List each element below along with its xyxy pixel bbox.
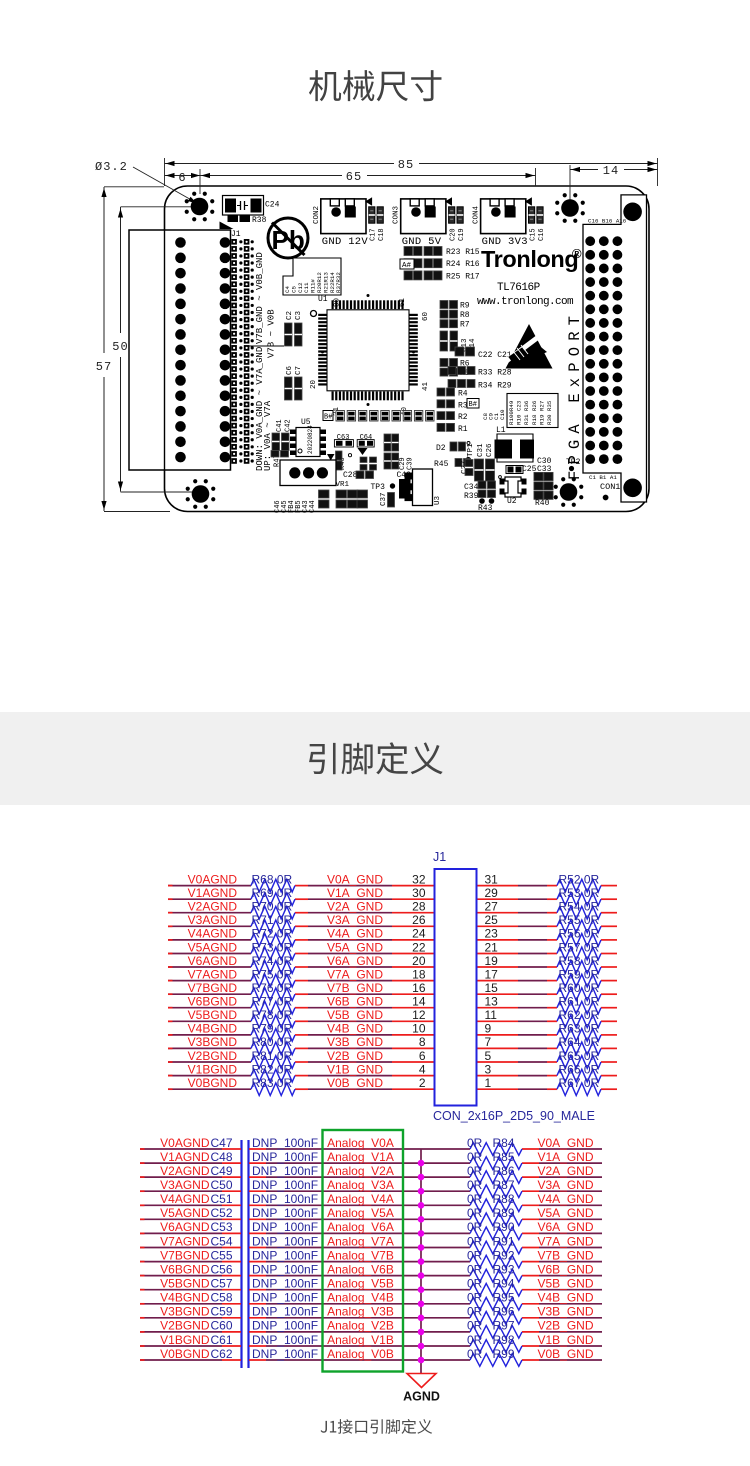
svg-text:DNP_100nF: DNP_100nF [252, 1206, 318, 1220]
svg-text:6: 6 [419, 1049, 426, 1063]
svg-text:Analog_V3B: Analog_V3B [327, 1305, 394, 1319]
svg-text:R60 0R: R60 0R [559, 981, 600, 995]
svg-text:80: 80 [334, 297, 342, 307]
svg-text:18: 18 [412, 967, 426, 981]
svg-text:C1 B1 A1: C1 B1 A1 [589, 474, 617, 481]
svg-text:R72 0R: R72 0R [252, 927, 293, 941]
svg-text:V1BGND: V1BGND [188, 1062, 238, 1076]
svg-text:Ø3.2: Ø3.2 [95, 160, 128, 174]
svg-text:U2: U2 [507, 497, 517, 506]
svg-text:C6: C6 [286, 365, 294, 375]
svg-text:R63 0R: R63 0R [559, 1022, 600, 1036]
svg-text:R82 0R: R82 0R [252, 1062, 293, 1076]
svg-text:TP1: TP1 [467, 443, 475, 457]
svg-text:V4A_GND: V4A_GND [537, 1192, 593, 1206]
svg-text:R43: R43 [478, 504, 493, 513]
svg-text:R18 R26: R18 R26 [531, 400, 538, 425]
svg-text:5: 5 [485, 1049, 492, 1063]
svg-text:R33 R28: R33 R28 [478, 369, 512, 378]
svg-text:V2B_GND: V2B_GND [327, 1049, 383, 1063]
svg-text:R52 0R: R52 0R [559, 872, 600, 886]
svg-text:R40: R40 [535, 499, 550, 508]
svg-text:R4: R4 [458, 390, 468, 399]
svg-text:R69 0R: R69 0R [252, 886, 293, 900]
svg-text:65: 65 [346, 170, 362, 184]
svg-text:R38: R38 [252, 216, 267, 225]
svg-text:Analog_V7A: Analog_V7A [327, 1234, 394, 1248]
svg-text:R78 0R: R78 0R [252, 1008, 293, 1022]
svg-text:C16 B16 A16: C16 B16 A16 [588, 218, 627, 225]
svg-text:85: 85 [398, 158, 414, 172]
svg-text:R54 0R: R54 0R [559, 900, 600, 914]
svg-text:15: 15 [485, 981, 499, 995]
svg-text:C52: C52 [211, 1206, 233, 1220]
svg-text:V6AGND: V6AGND [160, 1220, 210, 1234]
svg-text:V3B_GND: V3B_GND [327, 1035, 383, 1049]
svg-text:1: 1 [485, 1076, 492, 1090]
svg-text:C3: C3 [295, 310, 303, 320]
svg-text:DNP_100nF: DNP_100nF [252, 1305, 318, 1319]
svg-text:0R: 0R [467, 1262, 483, 1276]
svg-text:C39: C39 [407, 457, 415, 470]
svg-text:R99: R99 [493, 1347, 515, 1361]
svg-text:R8: R8 [460, 311, 470, 320]
svg-text:Analog_V1A: Analog_V1A [327, 1150, 394, 1164]
svg-text:V3BGND: V3BGND [160, 1305, 210, 1319]
svg-text:B#: B# [469, 401, 477, 409]
svg-text:Analog_V0A: Analog_V0A [327, 1136, 394, 1150]
svg-text:C59: C59 [211, 1305, 233, 1319]
svg-text:Analog_V6B: Analog_V6B [327, 1262, 394, 1276]
svg-text:R31 R36: R31 R36 [523, 400, 530, 425]
svg-text:C42: C42 [285, 419, 293, 432]
svg-text:V6A_GND: V6A_GND [537, 1220, 593, 1234]
svg-text:DNP_100nF: DNP_100nF [252, 1164, 318, 1178]
svg-text:DNP_100nF: DNP_100nF [252, 1192, 318, 1206]
svg-text:14: 14 [412, 995, 426, 1009]
svg-text:R45: R45 [434, 460, 449, 469]
svg-text:C28: C28 [343, 471, 358, 480]
svg-text:V0AGND: V0AGND [160, 1136, 210, 1150]
svg-text:C51: C51 [211, 1192, 233, 1206]
svg-text:V3A_GND: V3A_GND [537, 1178, 593, 1192]
svg-text:V2BGND: V2BGND [160, 1319, 210, 1333]
svg-text:R97: R97 [493, 1319, 515, 1333]
svg-text:V0B_GND: V0B_GND [327, 1076, 383, 1090]
svg-text:V1BGND: V1BGND [160, 1333, 210, 1347]
svg-text:R76 0R: R76 0R [252, 981, 293, 995]
svg-text:0R: 0R [467, 1192, 483, 1206]
svg-text:C49: C49 [211, 1164, 233, 1178]
svg-text:R92: R92 [493, 1248, 515, 1262]
svg-text:R86: R86 [493, 1164, 515, 1178]
svg-text:J1: J1 [231, 230, 241, 239]
svg-text:V5B_GND: V5B_GND [537, 1277, 593, 1291]
svg-text:C54: C54 [211, 1234, 233, 1248]
svg-text:DNP_100nF: DNP_100nF [252, 1277, 318, 1291]
svg-text:R91: R91 [493, 1234, 515, 1248]
svg-text:C20: C20 [450, 228, 458, 241]
svg-text:C2: C2 [286, 311, 294, 320]
svg-text:J1: J1 [433, 850, 446, 864]
svg-text:31: 31 [485, 872, 499, 886]
svg-text:R39: R39 [464, 492, 479, 501]
svg-text:Analog_V0B: Analog_V0B [327, 1347, 394, 1361]
svg-text:V5A_GND: V5A_GND [537, 1206, 593, 1220]
svg-text:R61 0R: R61 0R [559, 995, 600, 1009]
svg-text:24: 24 [412, 927, 426, 941]
svg-text:Analog_V2B: Analog_V2B [327, 1319, 394, 1333]
svg-text:R55 0R: R55 0R [559, 913, 600, 927]
svg-text:32: 32 [412, 872, 426, 886]
svg-text:V2A_GND: V2A_GND [327, 900, 383, 914]
svg-text:0R: 0R [467, 1220, 483, 1234]
svg-text:20220824: 20220824 [307, 425, 314, 454]
svg-text:V4BGND: V4BGND [188, 1022, 238, 1036]
svg-text:V3AGND: V3AGND [160, 1178, 210, 1192]
svg-text:DNP_100nF: DNP_100nF [252, 1347, 318, 1361]
svg-text:8: 8 [419, 1035, 426, 1049]
svg-text:R71 0R: R71 0R [252, 913, 293, 927]
svg-text:R19 R27: R19 R27 [538, 400, 545, 425]
svg-text:C47: C47 [211, 1136, 233, 1150]
svg-text:VR1: VR1 [336, 481, 350, 489]
svg-text:AGND: AGND [403, 1390, 440, 1404]
svg-text:C48: C48 [211, 1150, 233, 1164]
svg-text:V2B_GND: V2B_GND [537, 1319, 593, 1333]
svg-text:60: 60 [422, 311, 430, 321]
svg-text:V7B_GND: V7B_GND [537, 1248, 593, 1262]
svg-text:D2: D2 [436, 444, 446, 453]
svg-text:V7BGND: V7BGND [160, 1248, 210, 1262]
svg-text:R70 0R: R70 0R [252, 900, 293, 914]
svg-text:V1B_GND: V1B_GND [327, 1062, 383, 1076]
svg-text:V5AGND: V5AGND [188, 940, 238, 954]
svg-text:R56 0R: R56 0R [559, 927, 600, 941]
svg-text:R87: R87 [493, 1178, 515, 1192]
svg-text:C24: C24 [265, 201, 280, 210]
svg-text:0R: 0R [467, 1305, 483, 1319]
svg-text:C55: C55 [211, 1248, 233, 1262]
svg-text:C16: C16 [538, 228, 546, 241]
svg-text:0R: 0R [467, 1164, 483, 1178]
svg-text:V1A_GND: V1A_GND [327, 886, 383, 900]
svg-text:V2AGND: V2AGND [188, 900, 238, 914]
svg-text:R2: R2 [458, 413, 468, 422]
svg-text:DNP_100nF: DNP_100nF [252, 1262, 318, 1276]
svg-text:V6AGND: V6AGND [188, 954, 238, 968]
svg-text:C10: C10 [499, 409, 506, 420]
svg-text:R85: R85 [493, 1150, 515, 1164]
svg-text:0R: 0R [467, 1178, 483, 1192]
svg-text:V4BGND: V4BGND [160, 1291, 210, 1305]
svg-text:TP3: TP3 [371, 483, 386, 492]
svg-text:R96: R96 [493, 1305, 515, 1319]
svg-text:25: 25 [485, 913, 499, 927]
svg-text:20: 20 [310, 379, 318, 389]
svg-text:C60: C60 [211, 1319, 233, 1333]
svg-text:CON_2x16P_2D5_90_MALE: CON_2x16P_2D5_90_MALE [433, 1109, 595, 1123]
svg-text:V2AGND: V2AGND [160, 1164, 210, 1178]
svg-text:R25 R17: R25 R17 [446, 272, 480, 281]
svg-text:22: 22 [412, 940, 426, 954]
svg-text:R30 R35: R30 R35 [546, 400, 553, 425]
svg-text:V6BGND: V6BGND [188, 995, 238, 1009]
svg-text:V7B_GND: V7B_GND [327, 981, 383, 995]
svg-text:Analog_V7B: Analog_V7B [327, 1248, 394, 1262]
svg-text:C37: C37 [380, 492, 388, 506]
svg-text:CON3: CON3 [393, 205, 401, 224]
svg-text:DNP_100nF: DNP_100nF [252, 1150, 318, 1164]
svg-text:R65 0R: R65 0R [559, 1049, 600, 1063]
svg-text:R9: R9 [460, 302, 470, 311]
svg-text:13: 13 [485, 995, 499, 1009]
svg-text:Analog_V4B: Analog_V4B [327, 1291, 394, 1305]
svg-text:V7B ~ V0B: V7B ~ V0B [267, 309, 277, 358]
svg-text:B#: B# [324, 414, 332, 422]
svg-text:C57: C57 [211, 1277, 233, 1291]
svg-text:R1: R1 [458, 425, 468, 434]
svg-text:TL7616P: TL7616P [497, 282, 541, 294]
svg-text:Analog_V2A: Analog_V2A [327, 1164, 394, 1178]
svg-text:DNP_100nF: DNP_100nF [252, 1178, 318, 1192]
svg-text:V6B_GND: V6B_GND [537, 1262, 593, 1276]
svg-text:V6B_GND: V6B_GND [327, 995, 383, 1009]
svg-text:V7AGND: V7AGND [188, 967, 238, 981]
svg-text:R7: R7 [460, 321, 470, 330]
svg-text:V0AGND: V0AGND [188, 872, 238, 886]
svg-text:V3AGND: V3AGND [188, 913, 238, 927]
svg-text:R67 0R: R67 0R [559, 1076, 600, 1090]
svg-text:R84: R84 [493, 1136, 515, 1150]
svg-text:R66 0R: R66 0R [559, 1062, 600, 1076]
svg-text:30: 30 [412, 886, 426, 900]
svg-text:V2BGND: V2BGND [188, 1049, 238, 1063]
svg-text:DNP_100nF: DNP_100nF [252, 1248, 318, 1262]
svg-text:V2A_GND: V2A_GND [537, 1164, 593, 1178]
svg-text:V0A_GND: V0A_GND [327, 872, 383, 886]
svg-text:21: 21 [485, 940, 499, 954]
svg-text:C56: C56 [211, 1262, 233, 1276]
svg-text:0R: 0R [467, 1277, 483, 1291]
svg-text:V5A_GND: V5A_GND [327, 940, 383, 954]
svg-text:www.tronlong.com: www.tronlong.com [477, 296, 574, 308]
svg-text:R94: R94 [493, 1277, 515, 1291]
svg-text:V5B_GND: V5B_GND [327, 1008, 383, 1022]
svg-text:V7B_GND ~ V0B_GND: V7B_GND ~ V0B_GND [255, 252, 265, 344]
svg-text:R3: R3 [458, 401, 468, 410]
svg-text:U3: U3 [434, 495, 442, 505]
svg-text:0R: 0R [467, 1333, 483, 1347]
svg-text:6: 6 [178, 171, 185, 185]
svg-text:0R: 0R [467, 1347, 483, 1361]
svg-text:DNP_100nF: DNP_100nF [252, 1234, 318, 1248]
svg-text:C41: C41 [276, 419, 284, 432]
svg-text:UP: V0A ~ V7A: UP: V0A ~ V7A [263, 400, 273, 471]
svg-text:R23 R15: R23 R15 [446, 248, 480, 257]
svg-text:C7: C7 [295, 366, 303, 375]
svg-text:V0A_GND: V0A_GND [537, 1136, 593, 1150]
svg-text:V3BGND: V3BGND [188, 1035, 238, 1049]
svg-text:DNP_100nF: DNP_100nF [252, 1291, 318, 1305]
svg-text:17: 17 [485, 967, 499, 981]
svg-text:C44: C44 [309, 500, 317, 513]
svg-text:11: 11 [485, 1008, 498, 1022]
svg-text:27: 27 [485, 900, 499, 914]
svg-text:28: 28 [412, 900, 426, 914]
svg-text:R75 0R: R75 0R [252, 967, 293, 981]
svg-text:V5BGND: V5BGND [160, 1277, 210, 1291]
svg-text:V4B_GND: V4B_GND [327, 1022, 383, 1036]
svg-text:V1AGND: V1AGND [188, 886, 238, 900]
svg-text:16: 16 [412, 981, 426, 995]
svg-text:41: 41 [422, 381, 430, 391]
svg-text:R64 0R: R64 0R [559, 1035, 600, 1049]
svg-text:2: 2 [419, 1076, 426, 1090]
svg-text:V4B_GND: V4B_GND [537, 1291, 593, 1305]
svg-text:26: 26 [412, 913, 426, 927]
svg-text:C31: C31 [477, 443, 485, 457]
svg-text:V3A_GND: V3A_GND [327, 913, 383, 927]
svg-text:C53: C53 [211, 1220, 233, 1234]
svg-text:10: 10 [412, 1022, 426, 1036]
svg-text:R24 R16: R24 R16 [446, 260, 480, 269]
svg-text:R88: R88 [493, 1192, 515, 1206]
svg-text:V1A_GND: V1A_GND [537, 1150, 593, 1164]
svg-text:0R: 0R [467, 1150, 483, 1164]
svg-text:0R: 0R [467, 1248, 483, 1262]
svg-text:R95: R95 [493, 1291, 515, 1305]
svg-text:V7A_GND: V7A_GND [327, 967, 383, 981]
svg-text:V4AGND: V4AGND [160, 1192, 210, 1206]
svg-text:R79 0R: R79 0R [252, 1022, 293, 1036]
svg-text:0R: 0R [467, 1291, 483, 1305]
svg-text:R57 0R: R57 0R [559, 940, 600, 954]
svg-text:50: 50 [112, 340, 128, 354]
svg-text:CON4: CON4 [473, 205, 481, 224]
svg-text:R98: R98 [493, 1333, 515, 1347]
svg-text:R59 0R: R59 0R [559, 967, 600, 981]
svg-text:29: 29 [485, 886, 499, 900]
svg-text:R62 0R: R62 0R [559, 1008, 600, 1022]
svg-text:C62: C62 [211, 1347, 233, 1361]
svg-text:C61: C61 [211, 1333, 233, 1347]
svg-text:V5AGND: V5AGND [160, 1206, 210, 1220]
svg-text:R93: R93 [493, 1262, 515, 1276]
svg-text:Tronlong: Tronlong [481, 246, 578, 272]
svg-text:C17: C17 [370, 228, 378, 241]
svg-text:R83 0R: R83 0R [252, 1076, 293, 1090]
svg-text:V0BGND: V0BGND [188, 1076, 238, 1090]
svg-text:Analog_V5B: Analog_V5B [327, 1277, 394, 1291]
svg-text:Analog_V3A: Analog_V3A [327, 1178, 394, 1192]
svg-text:C19: C19 [458, 228, 466, 241]
svg-text:0R: 0R [467, 1234, 483, 1248]
svg-text:R58 0R: R58 0R [559, 954, 600, 968]
svg-text:Analog_V6A: Analog_V6A [327, 1220, 394, 1234]
svg-text:R80 0R: R80 0R [252, 1035, 293, 1049]
svg-text:R37R32: R37R32 [335, 272, 342, 293]
svg-text:0R: 0R [467, 1319, 483, 1333]
svg-text:3: 3 [485, 1062, 492, 1076]
svg-text:V3B_GND: V3B_GND [537, 1305, 593, 1319]
svg-text:R89: R89 [493, 1206, 515, 1220]
svg-text:CON2: CON2 [313, 206, 321, 224]
svg-text:A#: A# [402, 262, 412, 270]
svg-text:R10 C23: R10 C23 [516, 400, 523, 425]
svg-text:DNP_100nF: DNP_100nF [252, 1220, 318, 1234]
svg-text:U1: U1 [318, 295, 328, 304]
svg-text:V7A_GND: V7A_GND [537, 1234, 593, 1248]
svg-text:20: 20 [412, 954, 426, 968]
svg-text:®: ® [572, 246, 582, 261]
svg-text:R68 0R: R68 0R [252, 872, 293, 886]
svg-text:R77 0R: R77 0R [252, 995, 293, 1009]
svg-text:V0B_GND: V0B_GND [537, 1347, 593, 1361]
svg-text:C34: C34 [464, 483, 479, 492]
svg-text:V6BGND: V6BGND [160, 1262, 210, 1276]
svg-text:V7AGND: V7AGND [160, 1234, 210, 1248]
svg-text:C50: C50 [211, 1178, 233, 1192]
svg-text:V4A_GND: V4A_GND [327, 927, 383, 941]
svg-text:4: 4 [419, 1062, 426, 1076]
svg-text:V5BGND: V5BGND [188, 1008, 238, 1022]
svg-text:R100R49: R100R49 [508, 400, 515, 425]
svg-text:Analog_V4A: Analog_V4A [327, 1192, 394, 1206]
svg-text:GND 12V: GND 12V [322, 236, 369, 248]
svg-text:DNP_100nF: DNP_100nF [252, 1319, 318, 1333]
svg-text:FPGA ExPORT: FPGA ExPORT [566, 316, 584, 480]
svg-text:R53 0R: R53 0R [559, 886, 600, 900]
svg-text:14: 14 [603, 164, 619, 178]
svg-text:0R: 0R [467, 1136, 483, 1150]
svg-text:Analog_V1B: Analog_V1B [327, 1333, 394, 1347]
svg-text:R90: R90 [493, 1220, 515, 1234]
svg-text:V0BGND: V0BGND [160, 1347, 210, 1361]
svg-text:DNP_100nF: DNP_100nF [252, 1136, 318, 1150]
svg-text:9: 9 [485, 1022, 492, 1036]
svg-text:57: 57 [96, 360, 112, 374]
svg-text:R34 R29: R34 R29 [478, 382, 512, 391]
svg-text:7: 7 [485, 1035, 492, 1049]
svg-text:61: 61 [399, 297, 407, 307]
svg-text:V1B_GND: V1B_GND [537, 1333, 593, 1347]
svg-text:23: 23 [485, 927, 499, 941]
svg-text:C58: C58 [211, 1291, 233, 1305]
svg-text:V7BGND: V7BGND [188, 981, 238, 995]
svg-text:Analog_V5A: Analog_V5A [327, 1206, 394, 1220]
svg-text:C26: C26 [486, 443, 494, 457]
svg-text:19: 19 [485, 954, 499, 968]
svg-text:CON1: CON1 [600, 482, 620, 492]
svg-text:R73 0R: R73 0R [252, 940, 293, 954]
svg-text:C18: C18 [378, 228, 386, 241]
svg-text:12: 12 [412, 1008, 426, 1022]
svg-text:V1AGND: V1AGND [160, 1150, 210, 1164]
svg-text:0R: 0R [467, 1206, 483, 1220]
svg-text:V6A_GND: V6A_GND [327, 954, 383, 968]
svg-text:V4AGND: V4AGND [188, 927, 238, 941]
svg-text:C15: C15 [530, 228, 538, 241]
svg-text:R81 0R: R81 0R [252, 1049, 293, 1063]
svg-text:R74 0R: R74 0R [252, 954, 293, 968]
svg-text:DNP_100nF: DNP_100nF [252, 1333, 318, 1347]
